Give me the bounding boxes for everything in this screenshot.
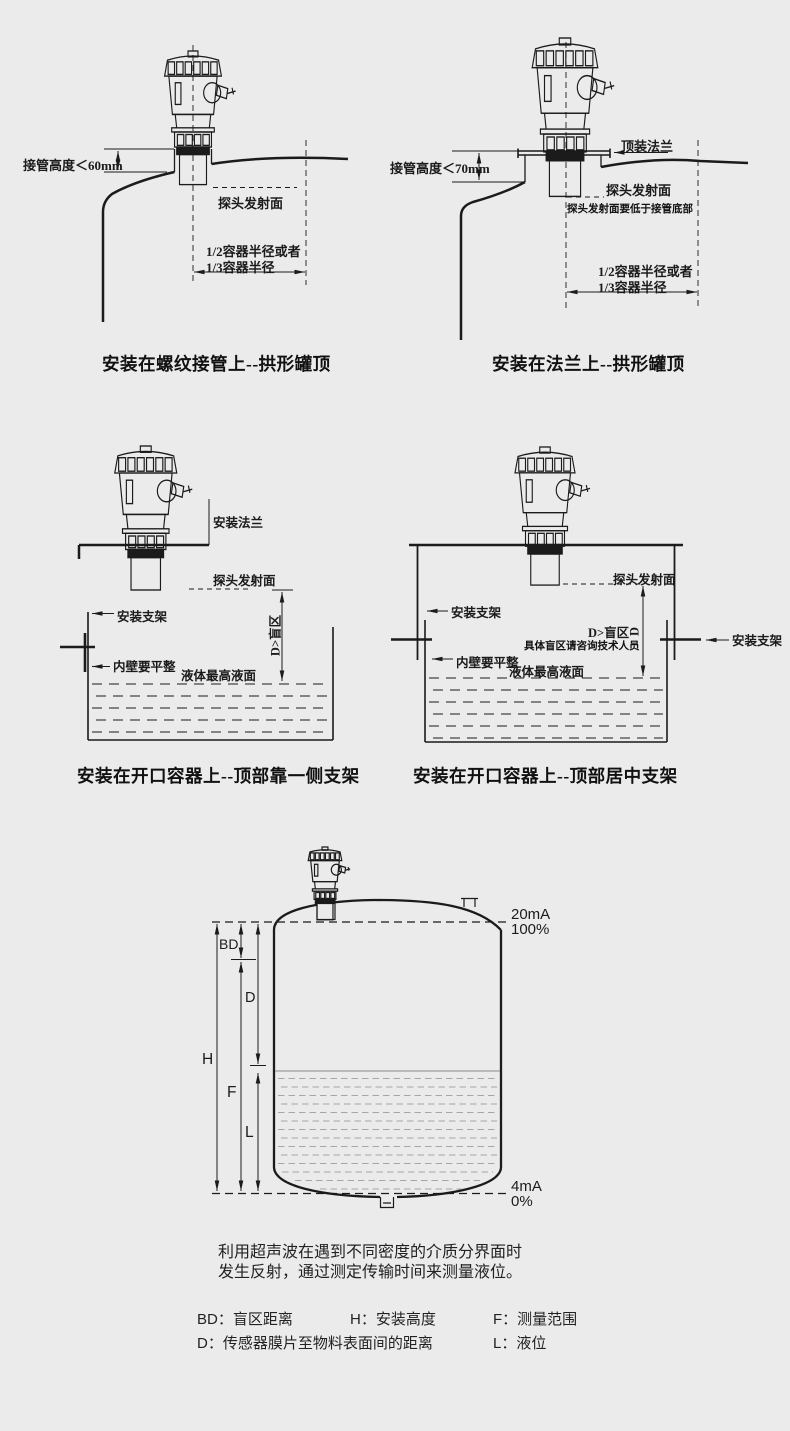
- diagram-open-vessel-side-bracket: [60, 446, 333, 740]
- bracket-label-right: 安装支架: [732, 630, 782, 649]
- probe-note-label: 探头发射面要低于接管底部: [567, 201, 693, 216]
- principle-description-line2: 发生反射，通过测定传输时间来测量液位。: [218, 1263, 522, 1283]
- wall-flat-label: 内壁要平整: [113, 656, 176, 675]
- tank-roof-left: [461, 182, 525, 340]
- probe-surface-label: 探头发射面: [218, 193, 283, 212]
- bracket-label-left: 安装支架: [451, 602, 501, 621]
- tank-roof-left: [103, 172, 175, 322]
- level-100-label: 100%: [511, 921, 549, 938]
- diagram-threaded-pipe: [103, 45, 348, 322]
- caption-threaded-pipe: 安装在螺纹接管上--拱形罐顶: [102, 351, 331, 376]
- dim-label-h: H: [202, 1051, 213, 1069]
- probe-surface-label: 探头发射面: [606, 180, 671, 199]
- dimension-lines: [217, 924, 266, 1191]
- liquid-dashes: [92, 684, 330, 732]
- caption-open-vessel-center: 安装在开口容器上--顶部居中支架: [413, 763, 678, 788]
- dim-label-l: L: [245, 1124, 254, 1142]
- legend-l: L：液位: [493, 1332, 546, 1353]
- legend-d: D：传感器膜片至物料表面间的距离: [197, 1332, 433, 1353]
- blind-zone-note: 具体盲区请咨询技术人员: [524, 638, 640, 653]
- radius-note-line2: 1/3容器半径: [598, 277, 667, 296]
- legend-f: F：测量范围: [493, 1308, 577, 1329]
- dim-label-d: D: [245, 990, 255, 1006]
- liquid-dashes: [429, 678, 663, 738]
- tank-roof-right: [212, 158, 349, 164]
- legend-h: H：安装高度: [350, 1308, 436, 1329]
- principle-description-line1: 利用超声波在遇到不同密度的介质分界面时: [218, 1243, 522, 1263]
- sensor-device: [115, 446, 193, 590]
- mount-flange-label: 安装法兰: [213, 512, 263, 531]
- tank-roof: [274, 900, 501, 930]
- top-flange-label: 顶装法兰: [621, 136, 673, 155]
- diagram-measurement-tank: [212, 847, 508, 1208]
- caption-open-vessel-side: 安装在开口容器上--顶部靠一侧支架: [77, 763, 360, 788]
- legend-bd: BD：盲区距离: [197, 1308, 293, 1329]
- radius-note-line2: 1/3容器半径: [206, 257, 275, 276]
- liquid-fill-dashes: [278, 1079, 497, 1190]
- tank-roof-right: [601, 160, 748, 167]
- top-right-nozzle: [461, 899, 478, 908]
- pipe-height-label: 接管高度＜70mm: [390, 158, 490, 177]
- probe-surface-label: 探头发射面: [213, 570, 276, 589]
- sensor-device: [532, 38, 614, 196]
- installation-diagram-sheet: 接管高度＜60mm 探头发射面 1/2容器半径或者 1/3容器半径 安装在螺纹接…: [0, 0, 790, 1431]
- blind-zone-label-vertical: D>盲区: [265, 606, 284, 666]
- sensor-device: [515, 447, 590, 585]
- tank-walls: [274, 930, 501, 1168]
- dim-label-bd: BD: [219, 936, 238, 952]
- caption-flange-mount: 安装在法兰上--拱形罐顶: [492, 351, 685, 376]
- diagram-open-vessel-center-bracket: [391, 447, 729, 742]
- pipe-height-label: 接管高度＜60mm: [23, 155, 123, 174]
- max-level-label: 液体最高液面: [181, 665, 256, 684]
- bracket-label: 安装支架: [117, 606, 167, 625]
- dim-label-f: F: [227, 1084, 236, 1102]
- max-level-label: 液体最高液面: [509, 661, 584, 680]
- probe-surface-label: 探头发射面: [613, 569, 676, 588]
- sensor-device: [165, 51, 236, 185]
- level-0-label: 0%: [511, 1193, 533, 1210]
- bottom-nozzle: [381, 1197, 394, 1208]
